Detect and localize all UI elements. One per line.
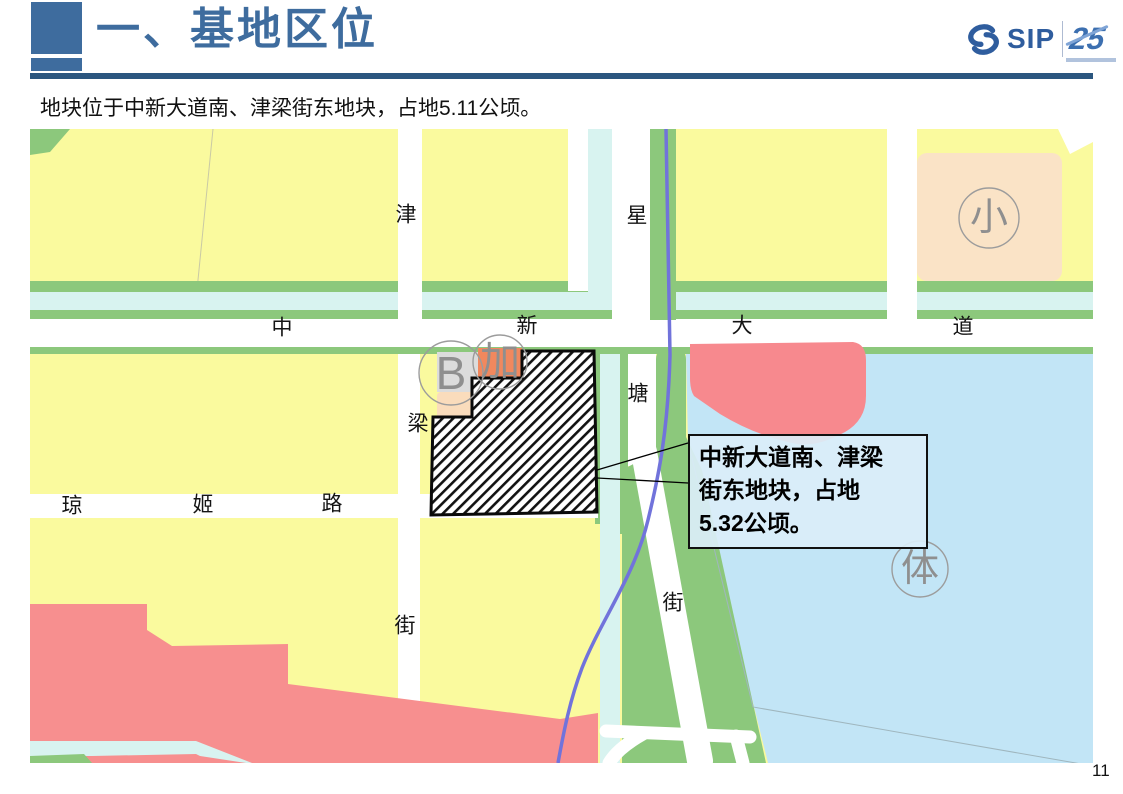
callout-line: 5.32公顷。 — [699, 507, 917, 540]
road-label-街: 街 — [663, 592, 684, 615]
site-map: B加小体津梁街星塘街中新大道琼姬路 — [30, 129, 1093, 763]
title-decoration-square — [31, 2, 82, 54]
road-label-姬: 姬 — [193, 494, 214, 517]
road-label-梁: 梁 — [408, 413, 429, 436]
slide: 一、基地区位 地块位于中新大道南、津梁街东地块，占地5.11公顷。 SIP 25 — [0, 0, 1123, 794]
road-jinliang-south — [398, 354, 420, 718]
area-label-B: B — [436, 347, 467, 399]
callout-line: 中新大道南、津梁 — [699, 441, 917, 474]
road-zhongxin-avenue — [30, 319, 1093, 347]
road-east-vertical — [887, 129, 917, 319]
area-label-小: 小 — [970, 197, 1008, 239]
canal-horizontal — [30, 281, 1093, 319]
road-label-琼: 琼 — [62, 495, 83, 518]
road-label-星: 星 — [627, 205, 648, 228]
callout-line: 街东地块，占地 — [699, 474, 917, 507]
road-label-街: 街 — [395, 615, 416, 638]
anniversary-logo: 25 — [1070, 21, 1104, 57]
logo-divider — [1062, 21, 1063, 57]
park-road-branch-down — [736, 736, 743, 763]
title-rule — [30, 73, 1093, 79]
xingtang-green-strip — [650, 129, 676, 320]
road-label-中: 中 — [272, 317, 293, 340]
sip-logo: SIP 25 — [966, 16, 1105, 62]
subtitle: 地块位于中新大道南、津梁街东地块，占地5.11公顷。 — [40, 92, 541, 122]
sip-swirl-icon — [966, 22, 1000, 56]
canal-vertical-north — [568, 129, 612, 292]
road-label-塘: 塘 — [628, 383, 649, 406]
road-label-津: 津 — [396, 204, 417, 227]
page-title: 一、基地区位 — [96, 0, 378, 60]
page-number: 11 — [1092, 761, 1110, 781]
road-label-路: 路 — [322, 493, 343, 516]
zoning-map: B加小体津梁街星塘街中新大道琼姬路 — [30, 129, 1093, 763]
sip-logo-text: SIP — [1007, 23, 1055, 55]
area-label-加: 加 — [480, 340, 520, 384]
area-label-体: 体 — [901, 548, 939, 590]
road-label-大: 大 — [732, 315, 753, 338]
road-label-道: 道 — [953, 316, 974, 339]
site-callout: 中新大道南、津梁 街东地块，占地 5.32公顷。 — [688, 434, 928, 549]
logo-caption-bar — [1066, 58, 1116, 62]
road-label-新: 新 — [517, 315, 538, 338]
title-decoration-bar — [31, 58, 82, 71]
